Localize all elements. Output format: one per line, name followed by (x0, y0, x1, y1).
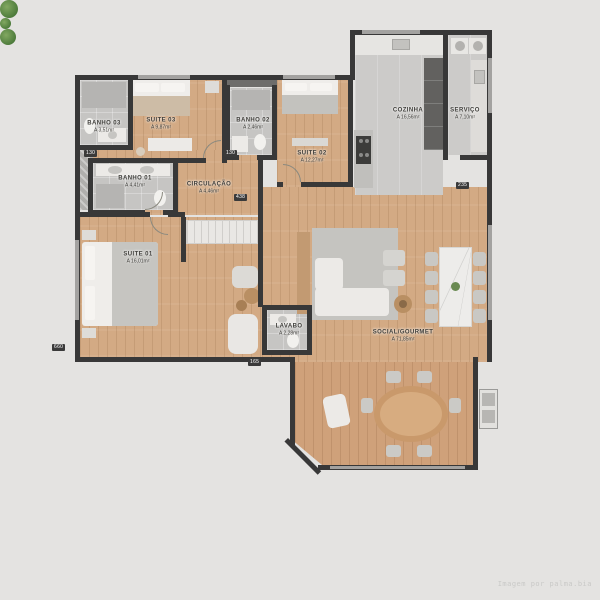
room-label-suite03: SUITE 03 A 9,87m² (146, 118, 175, 131)
washer-door (455, 41, 465, 51)
burner (359, 153, 363, 157)
room-name: BANHO 02 (236, 118, 270, 124)
nightstand (82, 230, 96, 240)
room-area: A 9,87m² (146, 125, 175, 131)
dining-chair (473, 271, 486, 285)
washer-door (473, 41, 483, 51)
window (75, 240, 79, 320)
terrace-chair (449, 398, 461, 413)
sofa-chaise (315, 258, 343, 290)
nightstand (205, 81, 219, 93)
shower (232, 90, 270, 110)
window (488, 58, 492, 113)
burner (359, 139, 363, 143)
window (362, 30, 420, 34)
room-label-social-gourmet: SOCIAL/GOURMET A 71,85m² (373, 330, 434, 343)
room-area: A 16,01m² (123, 259, 152, 265)
terrace-table-top (380, 392, 442, 436)
window (330, 466, 465, 469)
stool (136, 147, 145, 156)
dimension-tag: 130 (224, 150, 237, 157)
kitchen-sink (392, 39, 410, 50)
wall-segment (301, 182, 353, 187)
armchair (383, 270, 405, 286)
room-name: BANHO 01 (118, 176, 152, 182)
wall-segment (75, 212, 150, 217)
armchair (232, 266, 258, 288)
closet-strip (227, 80, 277, 87)
burner (365, 139, 369, 143)
room-area: A 4,41m² (118, 183, 152, 189)
wall-segment (443, 30, 448, 160)
room-area: A 71,85m² (373, 337, 434, 343)
room-label-banho02: BANHO 02 A 2,46m² (236, 118, 270, 131)
room-label-suite01: SUITE 01 A 16,01m² (123, 252, 152, 265)
laundry-sink (474, 70, 485, 84)
room-area: A 16,56m² (393, 115, 423, 121)
wall-segment (75, 357, 295, 362)
wall-segment (290, 357, 295, 445)
sink (140, 166, 154, 174)
room-name: COZINHA (393, 108, 423, 114)
room-name: CIRCULAÇÃO (187, 182, 231, 188)
room-area: A 7,10m² (450, 115, 480, 121)
dining-chair (473, 309, 486, 323)
plant (0, 18, 11, 29)
sink (108, 166, 122, 174)
room-area: A 2,28m² (276, 331, 303, 337)
room-label-banho03: BANHO 03 A 3,51m² (87, 121, 121, 134)
room-name: SOCIAL/GOURMET (373, 330, 434, 336)
room-area: A 4,46m² (187, 189, 231, 195)
centerpiece-plant (451, 282, 460, 291)
dimension-tag: 660 (52, 344, 65, 351)
pillow (161, 83, 185, 92)
window (488, 225, 492, 320)
dining-chair (473, 252, 486, 266)
plant (0, 29, 16, 45)
room-label-suite02: SUITE 02 A 12,27m² (297, 151, 326, 164)
room-name: SUITE 01 (123, 252, 152, 258)
window (138, 75, 190, 79)
chaise (228, 314, 258, 354)
tall-cabinets (424, 58, 443, 150)
nightstand (82, 328, 96, 338)
wall-segment (272, 85, 277, 160)
dimension-tag: 235 (456, 182, 469, 189)
dresser (148, 138, 192, 151)
wall-segment (225, 85, 230, 160)
terrace-chair (386, 371, 401, 383)
room-area: A 12,27m² (297, 158, 326, 164)
burner (365, 153, 369, 157)
room-area: A 2,46m² (236, 125, 270, 131)
wall-segment (262, 305, 267, 355)
bed-blanket (282, 95, 338, 114)
bench (292, 138, 328, 146)
ac-unit (482, 393, 495, 406)
room-name: LAVABO (276, 324, 303, 330)
room-name: SERVIÇO (450, 108, 480, 114)
coffee-table-inner (399, 300, 407, 308)
wall-segment (262, 305, 312, 310)
room-label-servico: SERVIÇO A 7,10m² (450, 108, 480, 121)
ottoman (236, 300, 247, 311)
room-name: SUITE 03 (146, 118, 175, 124)
plant (0, 0, 18, 18)
dining-chair (425, 271, 438, 285)
dining-chair (425, 290, 438, 304)
dimension-tag: 130 (84, 150, 97, 157)
wall-segment (350, 30, 355, 80)
bed-blanket (132, 96, 190, 116)
legend: N L S O CRYSTAL TOWER RESIDENCE TIPO 02 … (0, 490, 600, 580)
wall-segment (258, 215, 263, 307)
wall-segment (277, 182, 283, 187)
room-label-lavabo: LAVABO A 2,28m² (276, 324, 303, 337)
wall-segment (88, 158, 93, 215)
sofa (315, 288, 389, 316)
pillow (135, 83, 159, 92)
shower (82, 82, 126, 108)
dining-chair (425, 309, 438, 323)
tv-panel (297, 232, 310, 314)
wall-segment (128, 75, 133, 150)
wall-segment (473, 357, 478, 470)
terrace-chair (417, 371, 432, 383)
wall-segment (262, 350, 312, 355)
sink (278, 316, 287, 323)
terrace-chair (386, 445, 401, 457)
dining-chair (473, 290, 486, 304)
wardrobe (186, 220, 262, 244)
dimension-tag: 165 (248, 359, 261, 366)
watermark: Imagem por palma.bia (498, 580, 592, 588)
window (283, 75, 335, 79)
wall-segment (258, 160, 263, 215)
wall-segment (348, 75, 353, 187)
dimension-tag: 438 (234, 194, 247, 201)
ac-unit (482, 410, 495, 423)
room-name: BANHO 03 (87, 121, 121, 127)
dining-chair (425, 252, 438, 266)
wall-segment (88, 158, 178, 163)
wall-segment (181, 217, 186, 262)
wall-segment (460, 155, 492, 160)
terrace-chair (417, 445, 432, 457)
pillow (85, 246, 95, 280)
toilet (254, 134, 266, 150)
terrace-chair (361, 398, 373, 413)
room-name: SUITE 02 (297, 151, 326, 157)
room-label-circulacao: CIRCULAÇÃO A 4,46m² (187, 182, 231, 195)
floor-plan-image: BANHO 03 A 3,51m² SUITE 03 A 9,87m² BANH… (0, 0, 600, 600)
pillow (310, 83, 332, 91)
wall-segment (173, 158, 178, 215)
room-label-banho01: BANHO 01 A 4,41m² (118, 176, 152, 189)
wall-segment (443, 155, 448, 160)
room-label-cozinha: COZINHA A 16,56m² (393, 108, 423, 121)
pillow (85, 286, 95, 320)
armchair (383, 250, 405, 266)
room-area: A 3,51m² (87, 128, 121, 134)
pillow (285, 83, 307, 91)
wall-segment (307, 305, 312, 355)
